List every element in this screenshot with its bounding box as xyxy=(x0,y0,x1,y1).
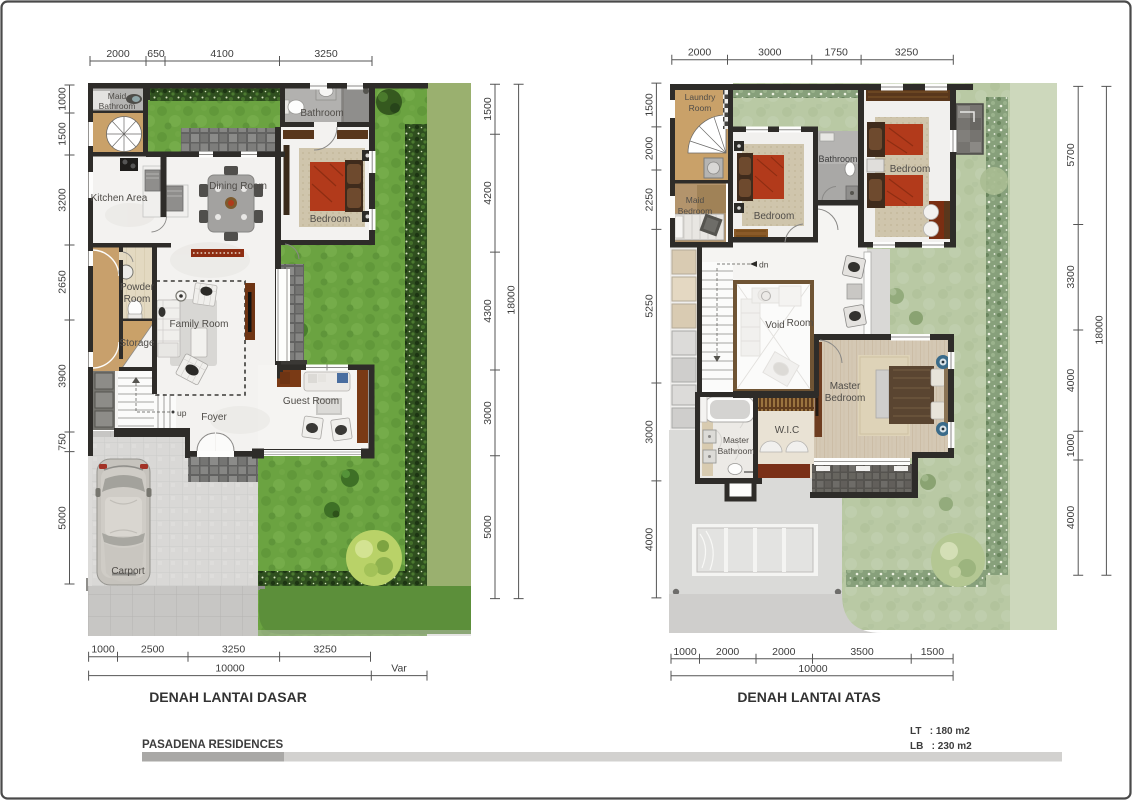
svg-text:4300: 4300 xyxy=(482,299,494,323)
svg-text:Powder: Powder xyxy=(120,282,155,293)
svg-text:4000: 4000 xyxy=(1065,506,1077,530)
svg-text:Room: Room xyxy=(689,103,712,113)
svg-text:2500: 2500 xyxy=(141,644,165,656)
svg-text:PASADENA RESIDENCES: PASADENA RESIDENCES xyxy=(142,739,284,751)
svg-text:up: up xyxy=(177,408,187,418)
svg-text:Bedroom: Bedroom xyxy=(890,164,931,175)
svg-text:Bathroom: Bathroom xyxy=(99,101,136,111)
svg-text:4000: 4000 xyxy=(1065,369,1077,393)
svg-text:1000: 1000 xyxy=(91,644,115,656)
svg-text:650: 650 xyxy=(147,48,165,60)
svg-text:3250: 3250 xyxy=(895,47,919,59)
svg-text:Var: Var xyxy=(391,663,407,675)
svg-text:2250: 2250 xyxy=(643,188,655,212)
svg-text:Master: Master xyxy=(830,381,861,392)
svg-text:Room: Room xyxy=(787,318,814,329)
svg-text:Laundry: Laundry xyxy=(685,92,716,102)
svg-text:LB : 230 m2: LB : 230 m2 xyxy=(910,741,972,752)
svg-text:Room: Room xyxy=(124,294,151,305)
svg-text:Guest Room: Guest Room xyxy=(283,396,339,407)
svg-text:Carport: Carport xyxy=(111,566,145,577)
svg-text:Bedroom: Bedroom xyxy=(825,393,866,404)
svg-text:DENAH LANTAI ATAS: DENAH LANTAI ATAS xyxy=(737,689,880,705)
svg-text:Maid: Maid xyxy=(108,91,127,101)
svg-text:2000: 2000 xyxy=(688,47,712,59)
svg-text:W.I.C: W.I.C xyxy=(775,425,799,436)
svg-text:2000: 2000 xyxy=(106,48,130,60)
svg-text:Bathroom: Bathroom xyxy=(818,154,857,164)
svg-text:3250: 3250 xyxy=(314,48,338,60)
svg-text:5000: 5000 xyxy=(57,506,69,530)
svg-text:Bathroom: Bathroom xyxy=(300,108,343,119)
svg-text:3900: 3900 xyxy=(57,364,69,388)
svg-text:Dining Room: Dining Room xyxy=(209,181,267,192)
svg-text:Bedroom: Bedroom xyxy=(310,214,351,225)
svg-text:1500: 1500 xyxy=(57,122,69,146)
svg-text:750: 750 xyxy=(57,433,69,451)
svg-text:2650: 2650 xyxy=(57,270,69,294)
svg-text:Storage: Storage xyxy=(119,338,154,349)
svg-text:Maid: Maid xyxy=(686,195,705,205)
svg-text:5250: 5250 xyxy=(643,294,655,318)
svg-text:Void: Void xyxy=(765,320,784,331)
svg-text:2000: 2000 xyxy=(643,137,655,161)
svg-text:18000: 18000 xyxy=(506,285,518,314)
svg-text:1750: 1750 xyxy=(825,47,849,59)
svg-text:Bedroom: Bedroom xyxy=(678,206,713,216)
svg-text:3000: 3000 xyxy=(482,401,494,425)
svg-text:10000: 10000 xyxy=(215,663,244,675)
svg-text:5700: 5700 xyxy=(1065,143,1077,167)
svg-text:10000: 10000 xyxy=(798,663,827,675)
svg-text:1500: 1500 xyxy=(643,93,655,117)
svg-text:1000: 1000 xyxy=(57,87,69,111)
svg-text:5000: 5000 xyxy=(482,515,494,539)
svg-text:3000: 3000 xyxy=(643,420,655,444)
svg-text:2000: 2000 xyxy=(772,646,796,658)
svg-text:Master: Master xyxy=(723,435,749,445)
svg-text:4100: 4100 xyxy=(210,48,234,60)
svg-text:18000: 18000 xyxy=(1093,315,1105,344)
svg-text:2000: 2000 xyxy=(716,646,740,658)
svg-text:4200: 4200 xyxy=(482,181,494,205)
svg-text:3250: 3250 xyxy=(313,644,337,656)
svg-text:4000: 4000 xyxy=(643,528,655,552)
svg-text:3500: 3500 xyxy=(850,646,874,658)
svg-text:Bedroom: Bedroom xyxy=(754,211,795,222)
svg-text:3250: 3250 xyxy=(222,644,246,656)
svg-text:LT : 180 m2: LT : 180 m2 xyxy=(910,726,970,737)
svg-text:Family Room: Family Room xyxy=(170,319,229,330)
svg-text:DENAH LANTAI DASAR: DENAH LANTAI DASAR xyxy=(149,689,307,705)
svg-text:1000: 1000 xyxy=(673,646,697,658)
svg-text:Kitchen Area: Kitchen Area xyxy=(91,193,148,204)
svg-text:1500: 1500 xyxy=(482,97,494,121)
svg-text:3300: 3300 xyxy=(1065,265,1077,289)
svg-text:Bathroom: Bathroom xyxy=(718,446,755,456)
svg-text:3200: 3200 xyxy=(57,188,69,212)
svg-text:3000: 3000 xyxy=(758,47,782,59)
svg-text:dn: dn xyxy=(759,260,769,270)
svg-text:1500: 1500 xyxy=(921,646,945,658)
svg-text:Foyer: Foyer xyxy=(201,412,227,423)
svg-text:1000: 1000 xyxy=(1065,434,1077,458)
